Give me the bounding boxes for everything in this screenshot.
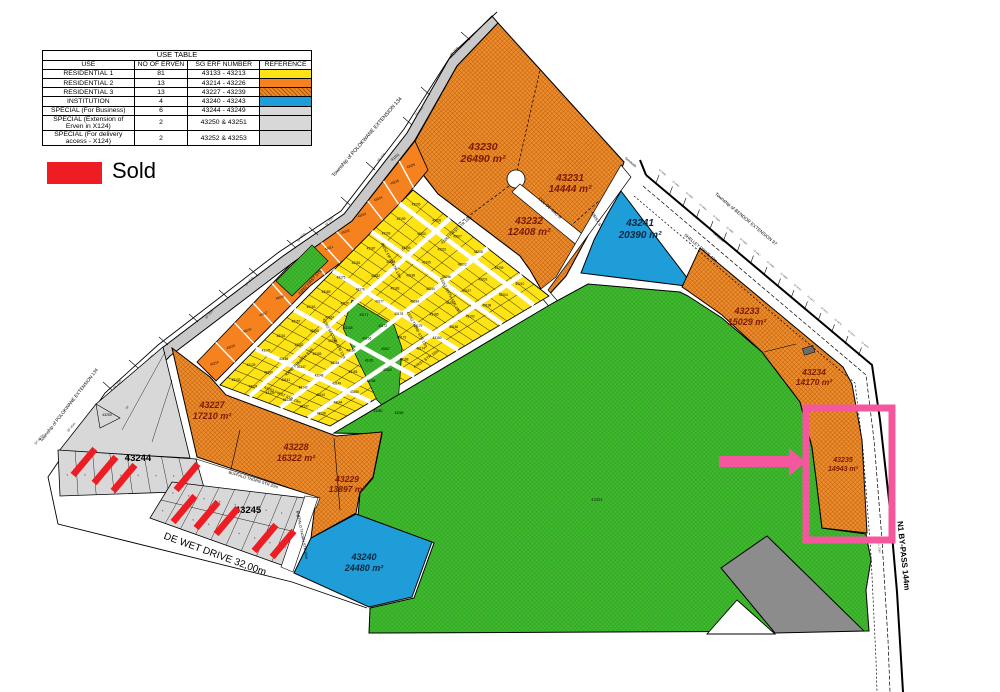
svg-text:43207: 43207 bbox=[453, 234, 462, 238]
svg-text:43193: 43193 bbox=[382, 232, 391, 236]
svg-text:43168: 43168 bbox=[400, 358, 409, 362]
svg-text:43210: 43210 bbox=[515, 282, 524, 286]
svg-text:43227: 43227 bbox=[198, 400, 225, 410]
svg-text:43250: 43250 bbox=[102, 413, 112, 417]
svg-text:43137: 43137 bbox=[300, 405, 309, 409]
svg-text:43148: 43148 bbox=[315, 373, 324, 377]
svg-text:14444 m²: 14444 m² bbox=[549, 184, 592, 195]
svg-text:43184: 43184 bbox=[410, 300, 419, 304]
svg-text:43251: 43251 bbox=[591, 497, 603, 502]
svg-text:43194: 43194 bbox=[402, 246, 411, 250]
svg-text:43139: 43139 bbox=[247, 363, 256, 367]
svg-text:43163: 43163 bbox=[307, 305, 316, 309]
svg-text:43176: 43176 bbox=[356, 288, 365, 292]
svg-text:14170 m²: 14170 m² bbox=[796, 377, 834, 387]
svg-text:26490 m²: 26490 m² bbox=[460, 153, 506, 165]
svg-text:43175: 43175 bbox=[337, 276, 346, 280]
svg-text:43230: 43230 bbox=[467, 141, 497, 153]
svg-text:43204: 43204 bbox=[499, 293, 508, 297]
svg-text:43143: 43143 bbox=[316, 393, 325, 397]
svg-text:43141: 43141 bbox=[281, 378, 290, 382]
svg-text:43205: 43205 bbox=[412, 203, 421, 207]
svg-text:14943 m²: 14943 m² bbox=[828, 466, 859, 473]
svg-text:43173: 43173 bbox=[397, 335, 406, 339]
svg-text:43155: 43155 bbox=[349, 370, 358, 374]
svg-text:43229: 43229 bbox=[334, 474, 359, 484]
svg-text:43161: 43161 bbox=[365, 359, 374, 363]
svg-text:15029 m²: 15029 m² bbox=[728, 317, 768, 327]
svg-text:43209: 43209 bbox=[495, 266, 504, 270]
svg-text:43183: 43183 bbox=[391, 287, 400, 291]
svg-text:43151: 43151 bbox=[277, 334, 286, 338]
svg-text:43185: 43185 bbox=[430, 312, 439, 316]
svg-text:43198: 43198 bbox=[482, 304, 491, 308]
svg-text:43144: 43144 bbox=[333, 401, 342, 405]
svg-text:43186: 43186 bbox=[449, 325, 458, 329]
svg-text:43202: 43202 bbox=[458, 263, 467, 267]
svg-text:43150: 43150 bbox=[350, 390, 359, 394]
svg-text:43190: 43190 bbox=[426, 287, 435, 291]
svg-text:43172: 43172 bbox=[378, 324, 387, 328]
svg-text:43152: 43152 bbox=[295, 343, 304, 347]
svg-text:20390 m²: 20390 m² bbox=[618, 230, 662, 241]
svg-text:43240: 43240 bbox=[350, 552, 376, 562]
svg-text:43177: 43177 bbox=[375, 300, 384, 304]
svg-text:43182: 43182 bbox=[371, 274, 380, 278]
svg-text:13897 m²: 13897 m² bbox=[329, 484, 367, 494]
svg-text:43232: 43232 bbox=[514, 216, 543, 227]
svg-text:43134: 43134 bbox=[249, 385, 258, 389]
svg-text:43178: 43178 bbox=[394, 312, 403, 316]
svg-text:43169: 43169 bbox=[322, 290, 331, 294]
svg-text:43197: 43197 bbox=[462, 289, 471, 293]
svg-text:43180: 43180 bbox=[433, 336, 442, 340]
svg-text:43259: 43259 bbox=[395, 411, 404, 415]
svg-text:43157: 43157 bbox=[292, 319, 301, 323]
svg-text:43158: 43158 bbox=[310, 329, 319, 333]
svg-text:43149: 43149 bbox=[332, 382, 341, 386]
svg-text:43166: 43166 bbox=[362, 336, 371, 340]
svg-text:43145: 43145 bbox=[262, 349, 271, 353]
svg-text:43162: 43162 bbox=[383, 368, 392, 372]
svg-text:24480 m²: 24480 m² bbox=[344, 563, 385, 573]
svg-text:43195: 43195 bbox=[422, 261, 431, 265]
svg-text:43244: 43244 bbox=[125, 453, 152, 464]
svg-text:43138: 43138 bbox=[317, 411, 326, 415]
svg-text:43200: 43200 bbox=[417, 232, 426, 236]
svg-text:43154: 43154 bbox=[331, 361, 340, 365]
svg-text:43201: 43201 bbox=[437, 247, 446, 251]
svg-text:43187: 43187 bbox=[367, 246, 376, 250]
svg-text:43228: 43228 bbox=[282, 442, 308, 452]
svg-text:43181: 43181 bbox=[352, 261, 361, 265]
svg-text:43241: 43241 bbox=[625, 218, 654, 229]
svg-text:43189: 43189 bbox=[406, 274, 415, 278]
svg-text:43203: 43203 bbox=[478, 278, 487, 282]
svg-text:43170: 43170 bbox=[340, 302, 349, 306]
svg-text:43199: 43199 bbox=[397, 217, 406, 221]
svg-text:43260: 43260 bbox=[374, 409, 383, 413]
svg-text:43234: 43234 bbox=[801, 367, 826, 377]
svg-text:43146: 43146 bbox=[279, 357, 288, 361]
svg-text:43165: 43165 bbox=[344, 326, 353, 330]
svg-text:43133: 43133 bbox=[232, 378, 241, 382]
svg-text:12408 m²: 12408 m² bbox=[508, 227, 551, 238]
svg-text:43235: 43235 bbox=[832, 457, 853, 464]
svg-text:43167: 43167 bbox=[381, 347, 390, 351]
svg-text:43142: 43142 bbox=[299, 386, 308, 390]
svg-text:17210 m²: 17210 m² bbox=[193, 411, 233, 421]
svg-text:43192: 43192 bbox=[466, 314, 475, 318]
svg-text:43233: 43233 bbox=[733, 306, 759, 316]
svg-text:43153: 43153 bbox=[313, 352, 322, 356]
svg-text:43174: 43174 bbox=[416, 347, 425, 351]
svg-text:16322 m²: 16322 m² bbox=[277, 453, 317, 463]
svg-text:43208: 43208 bbox=[474, 250, 483, 254]
svg-text:43160: 43160 bbox=[346, 349, 355, 353]
svg-text:43156: 43156 bbox=[367, 379, 376, 383]
svg-text:43206: 43206 bbox=[432, 218, 441, 222]
svg-text:43171: 43171 bbox=[359, 313, 368, 317]
svg-text:43231: 43231 bbox=[555, 173, 584, 184]
svg-text:43140: 43140 bbox=[264, 371, 273, 375]
